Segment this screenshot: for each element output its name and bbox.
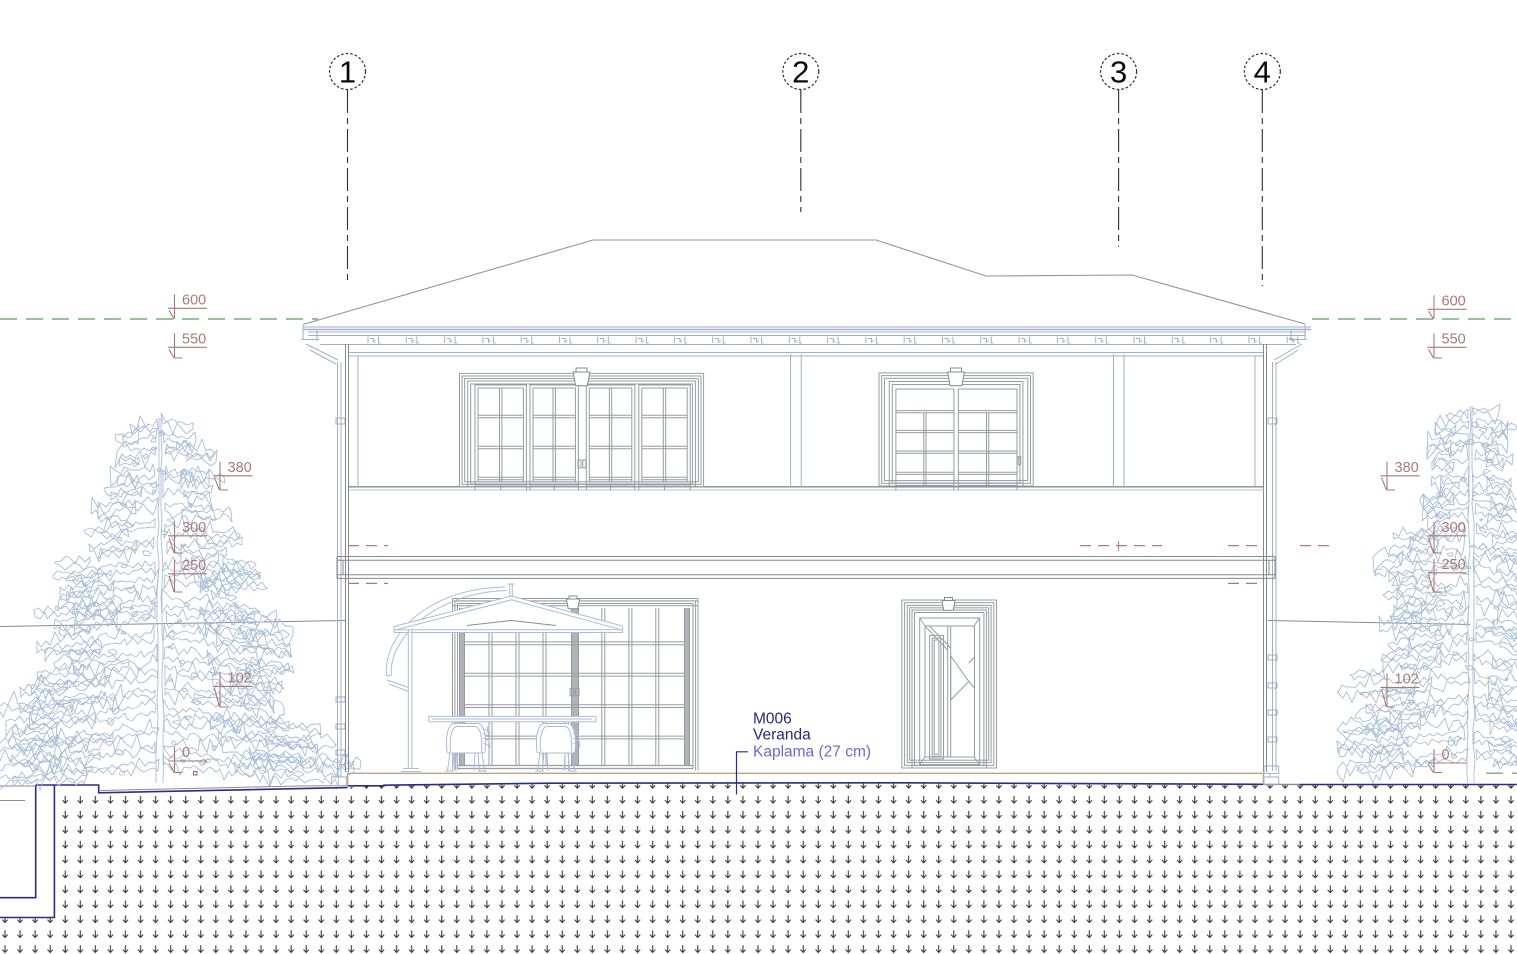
svg-text:102: 102 <box>228 670 252 686</box>
svg-text:0: 0 <box>1442 747 1450 763</box>
svg-text:250: 250 <box>1442 557 1466 573</box>
svg-text:Veranda: Veranda <box>753 727 811 744</box>
svg-text:250: 250 <box>182 558 206 574</box>
svg-text:380: 380 <box>1395 460 1419 476</box>
svg-text:102: 102 <box>1395 671 1419 687</box>
svg-text:Kaplama (27 cm): Kaplama (27 cm) <box>753 744 871 761</box>
svg-text:300: 300 <box>182 520 206 536</box>
svg-text:0: 0 <box>182 745 190 761</box>
svg-text:600: 600 <box>182 292 206 308</box>
svg-text:380: 380 <box>228 460 252 476</box>
svg-text:600: 600 <box>1442 293 1466 309</box>
svg-text:3: 3 <box>1110 55 1127 90</box>
svg-text:4: 4 <box>1254 55 1271 90</box>
svg-text:300: 300 <box>1442 520 1466 536</box>
svg-text:550: 550 <box>182 331 206 347</box>
svg-text:2: 2 <box>792 55 809 90</box>
svg-text:550: 550 <box>1442 331 1466 347</box>
svg-text:1: 1 <box>339 55 356 90</box>
svg-text:M006: M006 <box>753 711 792 728</box>
svg-text:CT: CT <box>119 772 127 778</box>
